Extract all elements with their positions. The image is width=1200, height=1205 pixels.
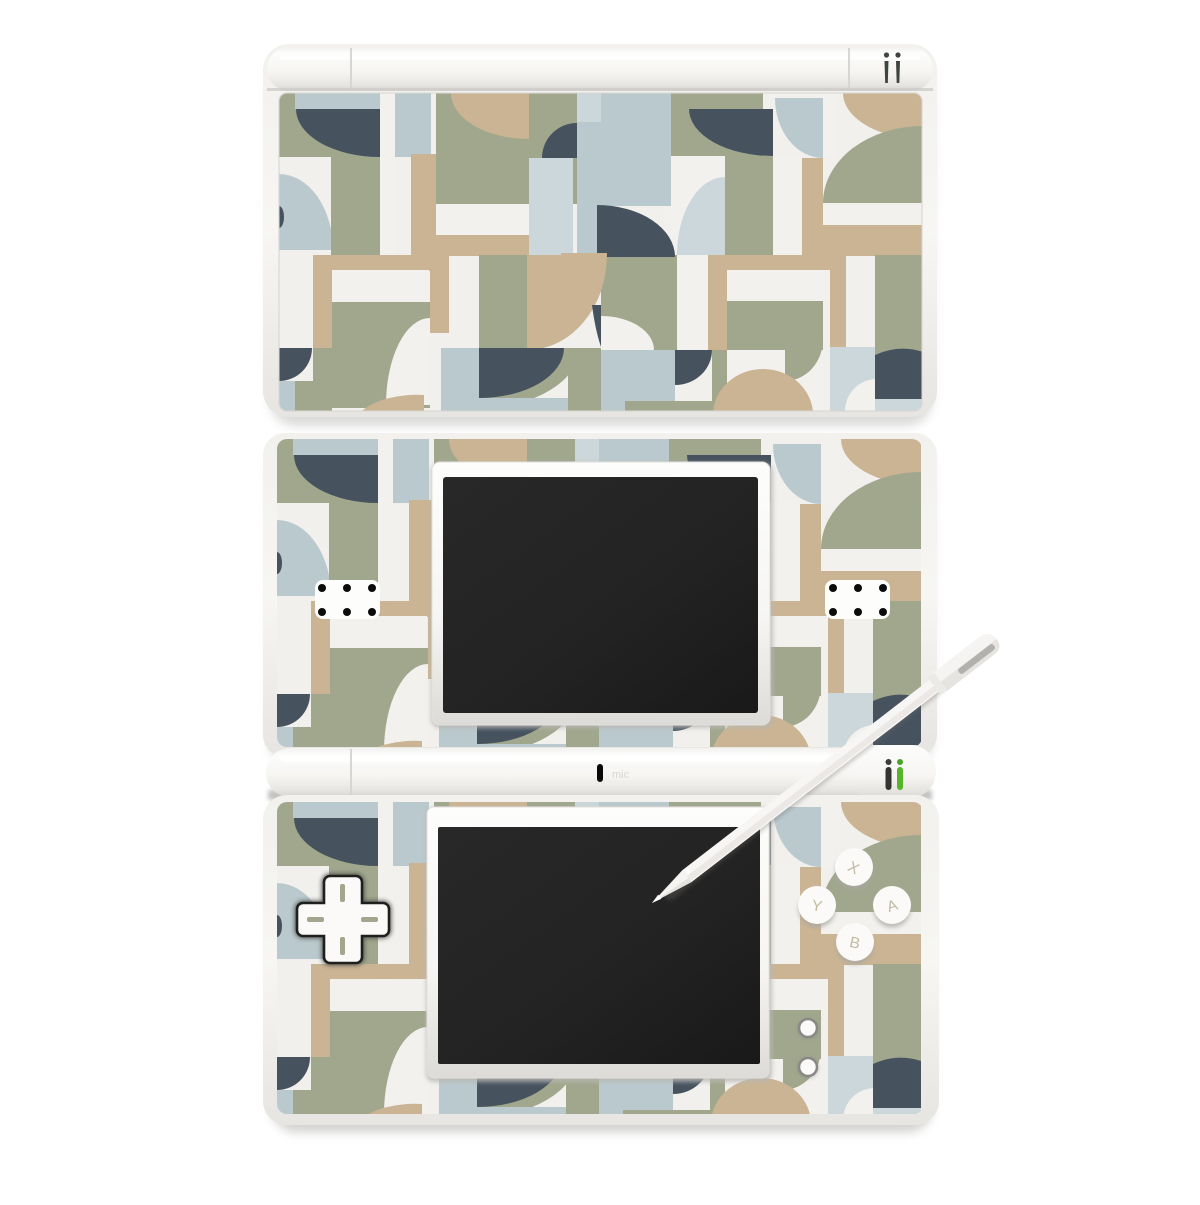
svg-text:mic: mic — [612, 769, 630, 781]
